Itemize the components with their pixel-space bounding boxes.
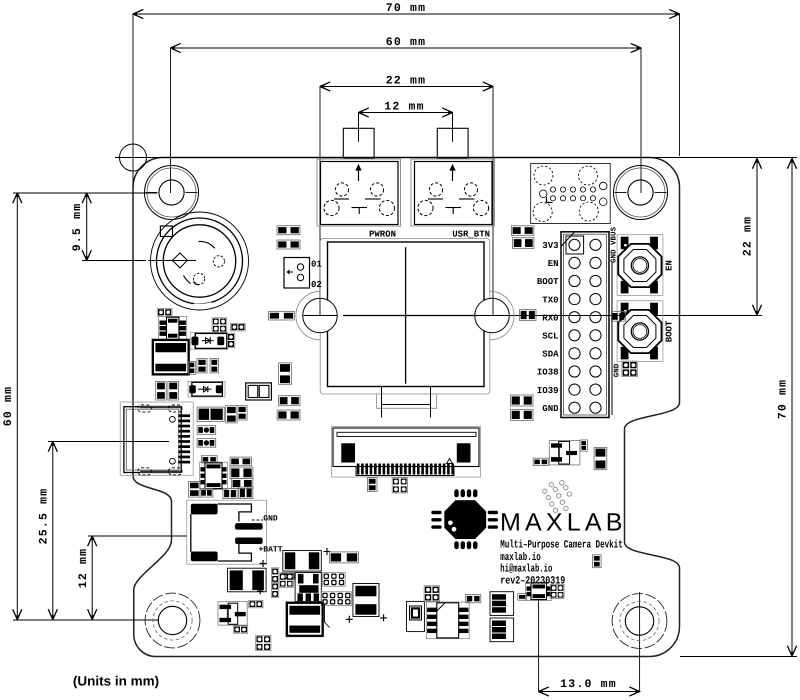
svg-text:GND: GND bbox=[263, 514, 278, 523]
svg-text:70 mm: 70 mm bbox=[777, 379, 790, 420]
svg-text:9.5 mm: 9.5 mm bbox=[71, 203, 84, 252]
svg-text:Multi–Purpose Camera Devkit: Multi–Purpose Camera Devkit bbox=[500, 540, 622, 552]
svg-text:USR_BTN: USR_BTN bbox=[452, 230, 490, 240]
svg-text:22 mm: 22 mm bbox=[386, 75, 427, 88]
svg-text:(Units in mm): (Units in mm) bbox=[73, 674, 159, 689]
svg-text:GND: GND bbox=[613, 363, 622, 377]
svg-text:01: 01 bbox=[311, 260, 322, 270]
svg-text:rev2–20230319: rev2–20230319 bbox=[500, 575, 565, 587]
svg-text:BOOT: BOOT bbox=[537, 277, 559, 287]
svg-text:EN: EN bbox=[665, 260, 675, 271]
svg-text:12 mm: 12 mm bbox=[384, 101, 425, 114]
svg-text:SCL: SCL bbox=[542, 332, 558, 342]
svg-text:3V3: 3V3 bbox=[542, 241, 558, 251]
svg-text:PWRON: PWRON bbox=[369, 230, 396, 240]
svg-text:BOOT: BOOT bbox=[665, 320, 675, 342]
svg-text:MAXLAB: MAXLAB bbox=[500, 509, 627, 537]
svg-text:25.5 mm: 25.5 mm bbox=[38, 488, 51, 545]
svg-text:IO38: IO38 bbox=[537, 368, 559, 378]
svg-text:RX0: RX0 bbox=[542, 313, 558, 323]
svg-text:13.0 mm: 13.0 mm bbox=[560, 678, 617, 691]
svg-text:GND: GND bbox=[542, 404, 559, 414]
svg-text:hi@maxlab.io: hi@maxlab.io bbox=[500, 564, 552, 576]
svg-text:TX0: TX0 bbox=[542, 295, 558, 305]
svg-text:maxlab.io: maxlab.io bbox=[500, 552, 541, 564]
svg-text:+BATT: +BATT bbox=[259, 546, 283, 555]
svg-text:EN: EN bbox=[548, 259, 559, 269]
svg-text:SDA: SDA bbox=[542, 350, 559, 360]
svg-text:02: 02 bbox=[311, 280, 322, 290]
svg-text:70 mm: 70 mm bbox=[386, 2, 427, 15]
svg-text:60 mm: 60 mm bbox=[2, 386, 15, 427]
svg-text:IO39: IO39 bbox=[537, 386, 559, 396]
svg-text:12 mm: 12 mm bbox=[77, 548, 90, 589]
svg-text:22 mm: 22 mm bbox=[742, 216, 755, 257]
svg-text:60 mm: 60 mm bbox=[386, 36, 427, 49]
